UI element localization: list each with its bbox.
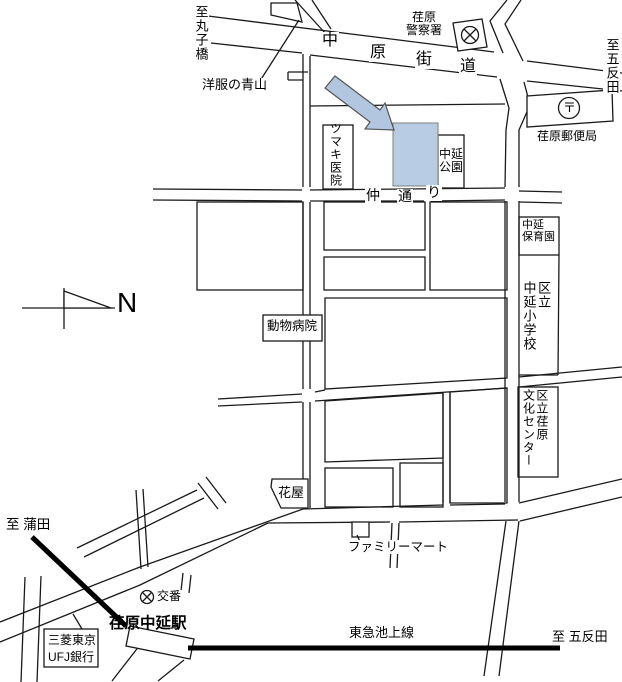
label-familymart: ファミリーマート [347, 540, 449, 554]
label-yofuku-no-aoyama: 洋服の青山 [201, 78, 268, 93]
block-a-sub2 [400, 463, 443, 507]
block-northwest [197, 202, 303, 290]
label-bank: 三菱東京 UFJ銀行 [47, 632, 97, 667]
label-nakahara-char-4: 道 [459, 58, 477, 76]
label-elementary-col1: 区立 [536, 281, 551, 351]
label-to-gotanda-top: 至五反田 [603, 38, 620, 94]
label-bank-line2: UFJ銀行 [48, 649, 96, 666]
label-nakahara-char-2: 原 [369, 44, 387, 62]
label-nakadori-char-1: 仲 [365, 188, 381, 204]
compass-n-label: N [116, 287, 138, 318]
label-nakahara-char-1: 中 [321, 32, 339, 50]
label-nakadori-char-2: 通 [397, 189, 413, 205]
label-nakanobu-elementary: 区立 中延小学校 [520, 281, 551, 351]
label-to-kamata: 至 蒲田 [5, 517, 51, 532]
yofuku-building [271, 3, 302, 22]
block-middle-lower [324, 257, 425, 290]
label-to-marukobashi: 至丸子橋 [192, 5, 209, 61]
gotanda-diagonal-street [484, 521, 519, 676]
post-office-icon: 〒 [562, 101, 577, 116]
label-nakanobu-park-line1: 中延 [439, 148, 463, 161]
left-vertical-street [303, 54, 310, 508]
access-map: 至丸子橋 洋服の青山 中 原 街 道 荏原 警察署 至五反田 〒 荏原郵便局 ツ… [0, 0, 622, 682]
label-bunka-center: 区立荏原 文化センター [520, 389, 549, 467]
label-ebara-police-line2: 警察署 [399, 24, 449, 37]
label-hoikuen-line2: 保育園 [522, 231, 555, 243]
vertical-street-443 [443, 392, 450, 503]
destination-building [393, 123, 438, 186]
narrow-parallel-street [77, 490, 204, 557]
label-koban: 交番 [156, 590, 182, 603]
label-ebara-post-office: 荏原郵便局 [536, 130, 598, 143]
label-to-gotanda-bottom: 至 五反田 [551, 630, 609, 645]
railway-west-segment [32, 537, 126, 626]
label-nakadori-char-3: り [426, 185, 442, 201]
label-nakanobu-hoikuen: 中延 保育園 [521, 219, 556, 244]
naka-dori-street [153, 188, 562, 203]
compass-needle [64, 291, 111, 308]
police-side-street [490, 0, 523, 61]
label-hoikuen-line1: 中延 [522, 219, 555, 231]
label-hanaya: 花屋 [277, 486, 305, 501]
familymart-building [352, 522, 369, 537]
label-nakanobu-park-line2: 公園 [439, 161, 463, 174]
label-nakanobu-park: 中延 公園 [438, 148, 464, 175]
block-b [450, 388, 507, 503]
block-middle-right [430, 202, 507, 290]
label-ebara-nakanobu-station: 荏原中延駅 [108, 615, 188, 632]
block-middle-upper [324, 202, 425, 250]
street-ticks [181, 573, 191, 593]
bank-pointer-line [73, 614, 82, 629]
destination-block-inner-line [310, 104, 505, 106]
label-bunka-col2: 文化センター [521, 389, 534, 467]
label-bank-line1: 三菱東京 [48, 632, 96, 649]
label-tsumaki-clinic: ツマキ医院 [327, 122, 342, 187]
label-elementary-col2: 中延小学校 [521, 281, 536, 351]
block-a-sub1 [325, 468, 393, 507]
label-animal-hospital: 動物病院 [266, 319, 318, 333]
label-bunka-col1: 区立荏原 [534, 389, 547, 467]
connector-street [198, 477, 226, 509]
middle-diagonal-street [218, 367, 622, 406]
label-nakahara-char-3: 街 [415, 51, 433, 69]
label-ebara-police: 荏原 警察署 [398, 11, 450, 38]
block-large-center [325, 298, 507, 389]
block-a [325, 393, 443, 462]
koban-symbol-x [142, 592, 152, 602]
label-tokyu-ikegami-line: 東急池上線 [348, 626, 415, 641]
right-lower-diagonal-street [519, 479, 622, 521]
street-notch [288, 72, 308, 80]
